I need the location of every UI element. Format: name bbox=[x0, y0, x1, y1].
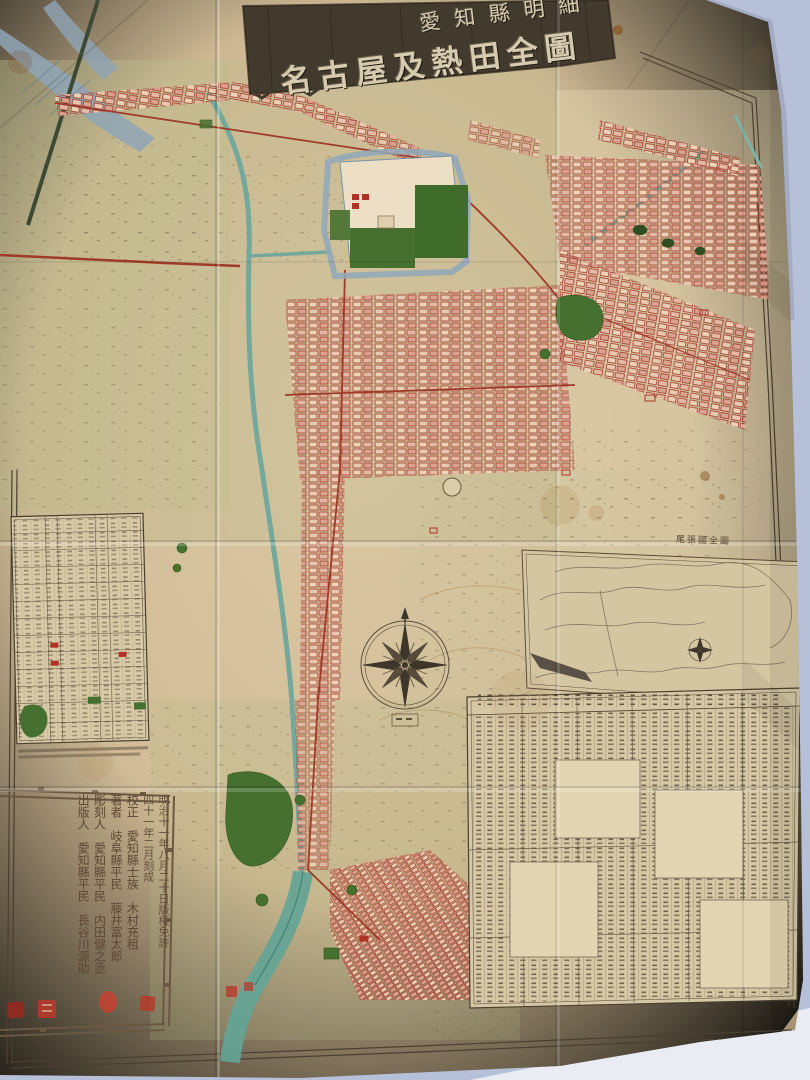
legend-table bbox=[11, 513, 149, 758]
photo-of-antique-nagoya-map: 愛知縣明細 名古屋及熱田全圖 尾張國全圖 明治十一年八月二十日版権免許 四十一年… bbox=[0, 0, 810, 1080]
pond bbox=[443, 478, 461, 496]
statistics-table bbox=[467, 688, 800, 1008]
map-artwork bbox=[0, 0, 810, 1080]
